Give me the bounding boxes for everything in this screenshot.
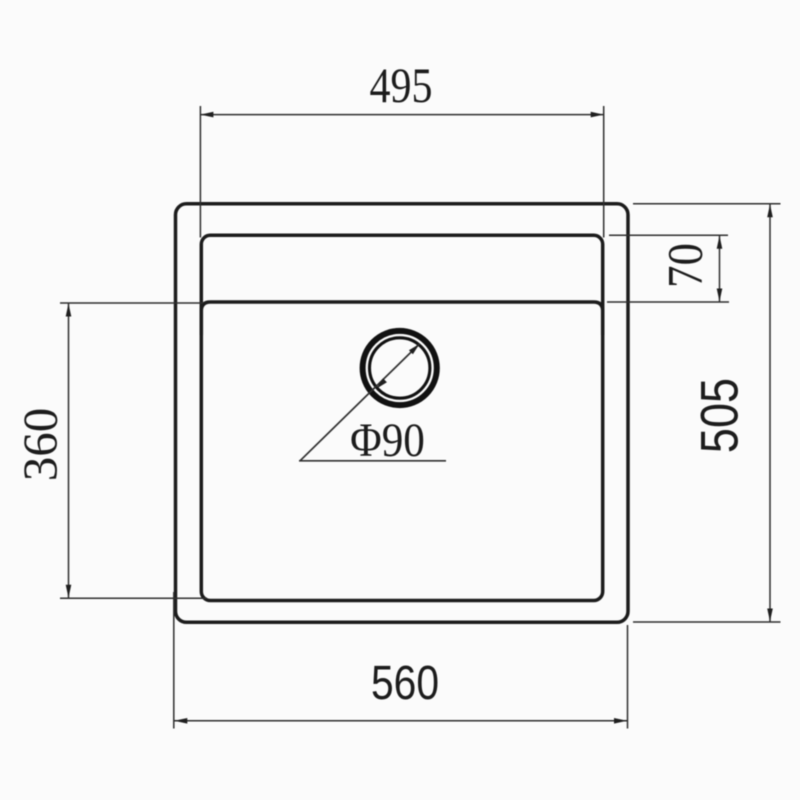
svg-text:Φ90: Φ90 (350, 413, 425, 467)
svg-text:70: 70 (658, 243, 713, 288)
svg-text:495: 495 (370, 58, 433, 113)
svg-text:360: 360 (13, 408, 68, 482)
svg-text:560: 560 (371, 657, 439, 710)
svg-text:505: 505 (690, 378, 749, 453)
